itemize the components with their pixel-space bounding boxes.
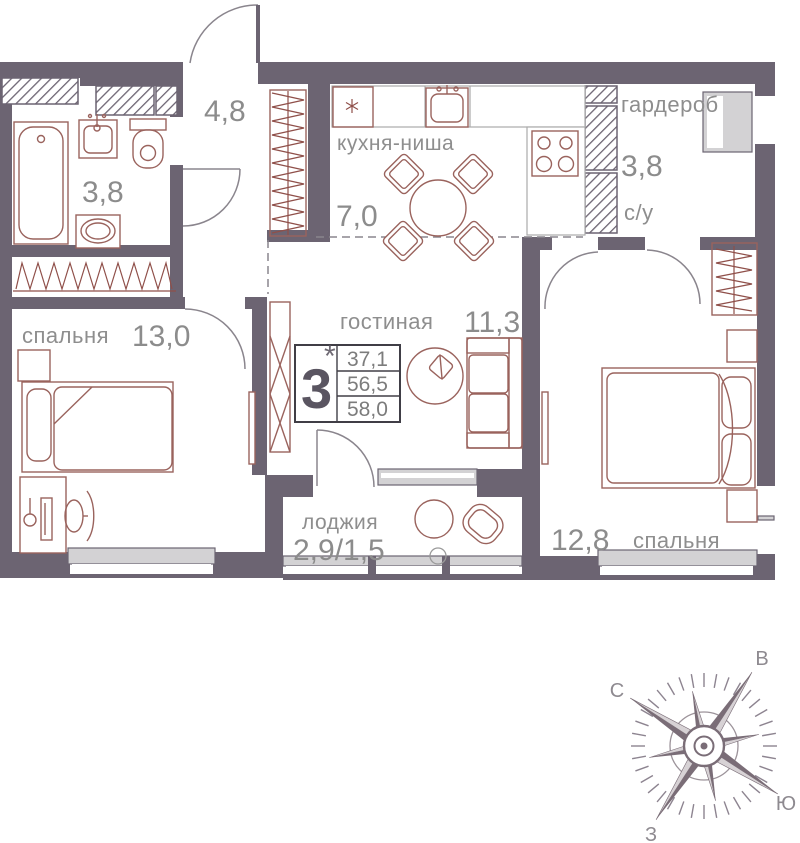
compass: В С Ю З — [610, 648, 796, 843]
stamp-note-mark: * — [324, 340, 336, 373]
loggia-furniture — [415, 500, 508, 564]
kitchen-fixtures — [332, 85, 585, 262]
tv-cabinet — [270, 302, 290, 452]
bathroom2-label: с/у — [624, 200, 654, 225]
loggia-label: лоджия — [302, 511, 378, 534]
desk-chair — [65, 491, 94, 541]
bedroom1-window — [68, 548, 215, 578]
bedroom2-door — [545, 252, 598, 309]
desk — [20, 477, 66, 553]
double-bed — [602, 368, 755, 488]
bedroom1-furniture — [18, 350, 255, 553]
sink — [79, 114, 117, 158]
stamp-total-area: 58,0 — [347, 398, 388, 421]
hallway-area: 4,8 — [204, 95, 246, 128]
balcony-window — [378, 469, 477, 485]
coffee-table — [407, 348, 463, 404]
dining-table — [382, 153, 495, 262]
stamp-apartment-area: 56,5 — [347, 373, 388, 396]
stamp-living-area: 37,1 — [347, 348, 388, 371]
single-bed — [22, 382, 173, 472]
bedroom2-area: 12,8 — [551, 524, 609, 557]
sofa — [467, 338, 522, 448]
compass-west-label: З — [645, 824, 657, 843]
hall-closet-rail — [270, 90, 306, 236]
tv-bedroom1 — [249, 392, 255, 464]
bedroom1-area: 13,0 — [132, 320, 190, 353]
bedroom2-window — [598, 550, 757, 580]
compass-north-label: С — [610, 680, 624, 702]
washing-machine — [76, 215, 120, 248]
compass-east-label: В — [755, 648, 768, 670]
bedroom1-label: спальня — [22, 323, 109, 348]
compass-south-label: Ю — [776, 793, 796, 815]
entry-door — [190, 5, 258, 63]
loggia-door — [317, 430, 374, 487]
stove — [532, 131, 578, 176]
kitchen-area: 7,0 — [336, 200, 378, 233]
kitchen-sink — [426, 85, 468, 127]
nightstand — [18, 350, 50, 381]
loggia-area: 2,9/1,5 — [293, 534, 385, 567]
floor-plan: 4,8 3,8 кухня-ниша 7,0 гардероб 3,8 с/у … — [0, 0, 800, 843]
bedroom1-closet-rail — [13, 263, 176, 291]
nightstand — [727, 330, 757, 362]
floor-plan-page: 4,8 3,8 кухня-ниша 7,0 гардероб 3,8 с/у … — [0, 0, 800, 843]
living-area: 11,3 — [464, 306, 520, 339]
tv-bedroom2 — [542, 392, 548, 464]
toilet — [130, 119, 166, 168]
wardrobe-label: гардероб — [621, 92, 719, 117]
bedroom2-wardrobe — [712, 243, 757, 315]
wardrobe-area: 3,8 — [621, 150, 663, 183]
kitchen-label: кухня-ниша — [337, 132, 454, 155]
loggia-chair — [458, 500, 508, 549]
bedroom2-label: спальня — [633, 528, 720, 553]
nightstand — [727, 490, 757, 522]
bathroom-door — [183, 169, 240, 226]
bathroom2-door — [647, 250, 700, 304]
apartment-stamp: 3 * 37,1 56,5 58,0 — [295, 340, 400, 422]
bedroom1-door — [185, 309, 245, 369]
bathtub — [14, 122, 68, 244]
bedroom2-furniture — [542, 330, 757, 522]
living-label: гостиная — [340, 309, 433, 334]
loggia-table — [415, 500, 453, 538]
bathroom-area: 3,8 — [82, 176, 124, 209]
